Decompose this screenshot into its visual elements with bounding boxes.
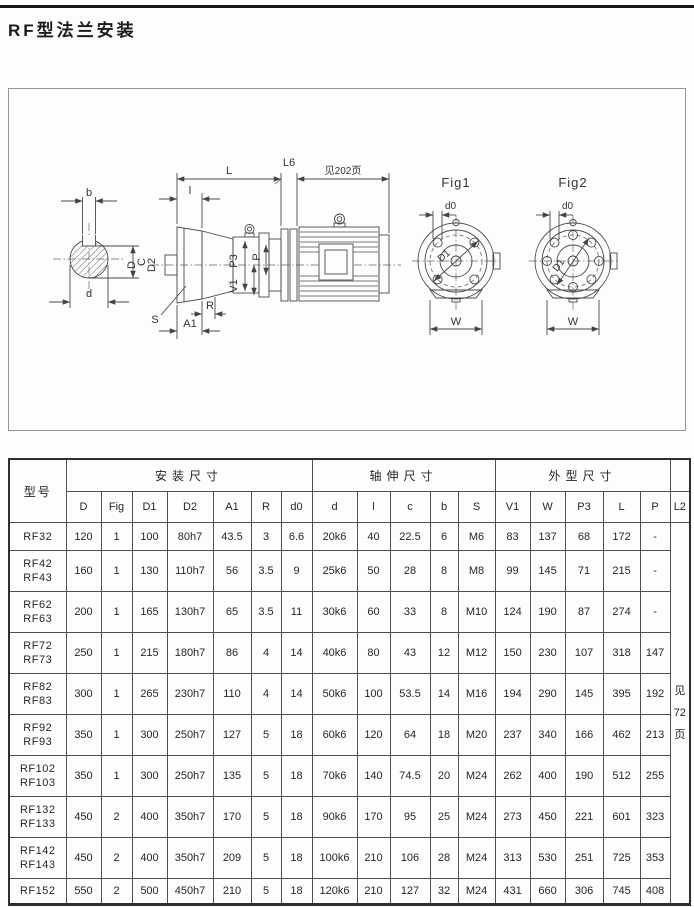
value-cell: 300 <box>66 674 101 715</box>
group-header-mounting: 安装尺寸 <box>66 459 312 492</box>
value-cell: 5 <box>251 797 281 838</box>
value-cell: 194 <box>495 674 530 715</box>
table-row: RF42RF431601130110h7563.5925k650288M8991… <box>9 551 690 592</box>
value-cell: 408 <box>640 879 670 905</box>
value-cell: 18 <box>281 756 312 797</box>
value-cell: 318 <box>603 633 640 674</box>
value-cell: 3 <box>251 523 281 551</box>
value-cell: 147 <box>640 633 670 674</box>
dim-label-P3: P3 <box>228 254 240 267</box>
value-cell: 273 <box>495 797 530 838</box>
value-cell: 68 <box>565 523 603 551</box>
value-cell: - <box>640 551 670 592</box>
table-row: RF102RF1033501300250h713551870k614074.52… <box>9 756 690 797</box>
value-cell: 300 <box>132 715 167 756</box>
col-header-d0: d0 <box>281 492 312 523</box>
value-cell: 1 <box>101 756 132 797</box>
value-cell: 395 <box>603 674 640 715</box>
model-name: RF32 <box>10 530 66 544</box>
value-cell: M8 <box>458 551 495 592</box>
dim-label-L6: L6 <box>283 157 295 169</box>
value-cell: 18 <box>281 838 312 879</box>
value-cell: 8 <box>430 551 458 592</box>
value-cell: 43 <box>390 633 430 674</box>
table-row: RF62RF632001165130h7653.51130k660338M101… <box>9 592 690 633</box>
value-cell: 56 <box>213 551 251 592</box>
value-cell: 400 <box>132 838 167 879</box>
fig1-caption: Fig1 <box>441 175 470 190</box>
value-cell: 40 <box>357 523 390 551</box>
fig1-dim-D1: D1 <box>436 247 453 264</box>
col-header-W: W <box>530 492 565 523</box>
table-row: RF72RF732501215180h78641440k6804312M1215… <box>9 633 690 674</box>
value-cell: 5 <box>251 838 281 879</box>
value-cell: 50k6 <box>312 674 357 715</box>
value-cell: 1 <box>101 715 132 756</box>
value-cell: M24 <box>458 797 495 838</box>
dim-label-R: R <box>206 300 214 312</box>
model-name: RF143 <box>10 858 66 872</box>
value-cell: 9 <box>281 551 312 592</box>
col-header-l: l <box>357 492 390 523</box>
value-cell: 350h7 <box>167 838 213 879</box>
value-cell: 400 <box>132 797 167 838</box>
value-cell: 8 <box>430 592 458 633</box>
value-cell: 1 <box>101 523 132 551</box>
table-row: RF92RF933501300250h712751860k61206418M20… <box>9 715 690 756</box>
value-cell: 5 <box>251 756 281 797</box>
value-cell: 601 <box>603 797 640 838</box>
value-cell: 725 <box>603 838 640 879</box>
value-cell: 313 <box>495 838 530 879</box>
model-name: RF142 <box>10 844 66 858</box>
l2-see-page-note: 见72页 <box>670 523 690 905</box>
model-name: RF93 <box>10 735 66 749</box>
model-name: RF132 <box>10 803 66 817</box>
value-cell: 130h7 <box>167 592 213 633</box>
value-cell: 450h7 <box>167 879 213 905</box>
dim-label-D: D <box>126 261 138 269</box>
value-cell: 166 <box>565 715 603 756</box>
value-cell: 145 <box>530 551 565 592</box>
value-cell: 28 <box>390 551 430 592</box>
col-header-S: S <box>458 492 495 523</box>
col-header-b: b <box>430 492 458 523</box>
value-cell: 160 <box>66 551 101 592</box>
value-cell: 221 <box>565 797 603 838</box>
col-header-L: L <box>603 492 640 523</box>
value-cell: M24 <box>458 756 495 797</box>
value-cell: 60 <box>357 592 390 633</box>
value-cell: 65 <box>213 592 251 633</box>
value-cell: M20 <box>458 715 495 756</box>
gearmotor-side-view <box>151 173 401 339</box>
value-cell: 25 <box>430 797 458 838</box>
value-cell: 350h7 <box>167 797 213 838</box>
group-header-l2-blank <box>670 459 690 492</box>
value-cell: 40k6 <box>312 633 357 674</box>
table-row: RF1525502500450h7210518120k621012732M244… <box>9 879 690 905</box>
value-cell: 255 <box>640 756 670 797</box>
fig2-dim-d0: d0 <box>562 201 574 212</box>
value-cell: 350 <box>66 715 101 756</box>
value-cell: 14 <box>430 674 458 715</box>
value-cell: 2 <box>101 797 132 838</box>
value-cell: 450 <box>66 838 101 879</box>
col-header-P: P <box>640 492 670 523</box>
value-cell: 170 <box>357 797 390 838</box>
value-cell: 60k6 <box>312 715 357 756</box>
value-cell: 14 <box>281 633 312 674</box>
value-cell: 250h7 <box>167 715 213 756</box>
value-cell: 43.5 <box>213 523 251 551</box>
value-cell: 2 <box>101 838 132 879</box>
value-cell: 90k6 <box>312 797 357 838</box>
group-header-overall: 外型尺寸 <box>495 459 670 492</box>
value-cell: 95 <box>390 797 430 838</box>
value-cell: M6 <box>458 523 495 551</box>
value-cell: 400 <box>530 756 565 797</box>
value-cell: 251 <box>565 838 603 879</box>
value-cell: 100 <box>132 523 167 551</box>
dim-label-A1: A1 <box>183 318 196 330</box>
value-cell: 306 <box>565 879 603 905</box>
value-cell: 230h7 <box>167 674 213 715</box>
value-cell: 130 <box>132 551 167 592</box>
value-cell: 100 <box>357 674 390 715</box>
shaft-section-drawing <box>49 197 139 308</box>
value-cell: 215 <box>132 633 167 674</box>
value-cell: 200 <box>66 592 101 633</box>
table-group-header-row: 型号 安装尺寸 轴伸尺寸 外型尺寸 <box>9 459 690 492</box>
value-cell: 190 <box>530 592 565 633</box>
value-cell: 6 <box>430 523 458 551</box>
value-cell: 230 <box>530 633 565 674</box>
value-cell: 262 <box>495 756 530 797</box>
page-top-rule <box>0 5 694 8</box>
value-cell: 210 <box>357 879 390 905</box>
table-row: RF132RF1334502400350h717051890k61709525M… <box>9 797 690 838</box>
value-cell: 250 <box>66 633 101 674</box>
model-cell: RF82RF83 <box>9 674 66 715</box>
model-cell: RF62RF63 <box>9 592 66 633</box>
model-name: RF43 <box>10 571 66 585</box>
value-cell: 5 <box>251 879 281 905</box>
value-cell: 1 <box>101 592 132 633</box>
fig2-dim-D1: D1 <box>551 257 568 274</box>
dim-label-b: b <box>86 187 92 199</box>
value-cell: 300 <box>132 756 167 797</box>
value-cell: 1 <box>101 633 132 674</box>
value-cell: 11 <box>281 592 312 633</box>
table-body: RF32120110080h743.536.620k64022.56M68313… <box>9 523 690 905</box>
model-name: RF82 <box>10 680 66 694</box>
model-name: RF102 <box>10 762 66 776</box>
value-cell: 14 <box>281 674 312 715</box>
value-cell: 99 <box>495 551 530 592</box>
value-cell: 74.5 <box>390 756 430 797</box>
value-cell: 30k6 <box>312 592 357 633</box>
value-cell: 28 <box>430 838 458 879</box>
value-cell: 124 <box>495 592 530 633</box>
col-header-model: 型号 <box>9 459 66 523</box>
value-cell: 190 <box>565 756 603 797</box>
col-header-c: c <box>390 492 430 523</box>
col-header-D2: D2 <box>167 492 213 523</box>
model-name: RF63 <box>10 612 66 626</box>
value-cell: 110h7 <box>167 551 213 592</box>
fig1-dim-d0: d0 <box>445 201 457 212</box>
value-cell: 100k6 <box>312 838 357 879</box>
value-cell: 120k6 <box>312 879 357 905</box>
value-cell: 4 <box>251 633 281 674</box>
value-cell: 250h7 <box>167 756 213 797</box>
value-cell: 237 <box>495 715 530 756</box>
value-cell: M10 <box>458 592 495 633</box>
dimension-drawing-panel: b C d <box>8 88 686 431</box>
value-cell: 86 <box>213 633 251 674</box>
value-cell: 210 <box>357 838 390 879</box>
value-cell: 120 <box>66 523 101 551</box>
value-cell: 290 <box>530 674 565 715</box>
value-cell: 80h7 <box>167 523 213 551</box>
model-cell: RF72RF73 <box>9 633 66 674</box>
value-cell: 350 <box>66 756 101 797</box>
value-cell: 745 <box>603 879 640 905</box>
page-title: RF型法兰安装 <box>8 16 137 41</box>
table-row: RF82RF833001265230h711041450k610053.514M… <box>9 674 690 715</box>
value-cell: 22.5 <box>390 523 430 551</box>
value-cell: 431 <box>495 879 530 905</box>
value-cell: 70k6 <box>312 756 357 797</box>
value-cell: 172 <box>603 523 640 551</box>
value-cell: 500 <box>132 879 167 905</box>
value-cell: M16 <box>458 674 495 715</box>
value-cell: 127 <box>213 715 251 756</box>
model-cell: RF152 <box>9 879 66 905</box>
value-cell: 550 <box>66 879 101 905</box>
dim-label-L: L <box>226 165 232 177</box>
dim-label-l: l <box>189 185 191 197</box>
value-cell: M12 <box>458 633 495 674</box>
value-cell: 210 <box>213 879 251 905</box>
col-header-d: d <box>312 492 357 523</box>
value-cell: 4 <box>251 674 281 715</box>
table-row: RF142RF1434502400350h7209518100k62101062… <box>9 838 690 879</box>
value-cell: 106 <box>390 838 430 879</box>
value-cell: 165 <box>132 592 167 633</box>
model-name: RF62 <box>10 598 66 612</box>
group-header-shaft: 轴伸尺寸 <box>312 459 495 492</box>
value-cell: 80 <box>357 633 390 674</box>
value-cell: 353 <box>640 838 670 879</box>
value-cell: - <box>640 592 670 633</box>
value-cell: 150 <box>495 633 530 674</box>
model-name: RF73 <box>10 653 66 667</box>
col-header-D: D <box>66 492 101 523</box>
value-cell: 5 <box>251 715 281 756</box>
dim-label-S: S <box>151 314 158 326</box>
value-cell: 12 <box>430 633 458 674</box>
value-cell: 18 <box>430 715 458 756</box>
value-cell: 2 <box>101 879 132 905</box>
fig2-dim-W: W <box>568 316 579 328</box>
fig1-dim-W: W <box>451 316 462 328</box>
model-cell: RF132RF133 <box>9 797 66 838</box>
value-cell: 6.6 <box>281 523 312 551</box>
value-cell: 462 <box>603 715 640 756</box>
dim-label-P: P <box>251 253 263 260</box>
model-cell: RF92RF93 <box>9 715 66 756</box>
value-cell: 32 <box>430 879 458 905</box>
col-header-L2: L2 <box>670 492 690 523</box>
value-cell: 50 <box>357 551 390 592</box>
model-name: RF92 <box>10 721 66 735</box>
value-cell: M24 <box>458 838 495 879</box>
col-header-D1: D1 <box>132 492 167 523</box>
value-cell: 3.5 <box>251 592 281 633</box>
model-name: RF72 <box>10 639 66 653</box>
model-name: RF42 <box>10 557 66 571</box>
l2-note-char: 页 <box>671 728 690 743</box>
value-cell: 450 <box>530 797 565 838</box>
dim-label-d: d <box>86 288 92 300</box>
value-cell: 137 <box>530 523 565 551</box>
value-cell: 265 <box>132 674 167 715</box>
value-cell: 110 <box>213 674 251 715</box>
value-cell: 450 <box>66 797 101 838</box>
value-cell: 64 <box>390 715 430 756</box>
value-cell: 20k6 <box>312 523 357 551</box>
dimension-table: 型号 安装尺寸 轴伸尺寸 外型尺寸 D Fig D1 D2 A1 R d0 d … <box>8 458 691 906</box>
value-cell: 3.5 <box>251 551 281 592</box>
model-name: RF83 <box>10 694 66 708</box>
value-cell: 18 <box>281 797 312 838</box>
value-cell: 213 <box>640 715 670 756</box>
value-cell: 192 <box>640 674 670 715</box>
value-cell: 1 <box>101 551 132 592</box>
dimension-drawing: b C d <box>9 89 685 430</box>
value-cell: 274 <box>603 592 640 633</box>
value-cell: 120 <box>357 715 390 756</box>
value-cell: 340 <box>530 715 565 756</box>
value-cell: 512 <box>603 756 640 797</box>
value-cell: 83 <box>495 523 530 551</box>
value-cell: 25k6 <box>312 551 357 592</box>
value-cell: 135 <box>213 756 251 797</box>
l2-note-char: 见 <box>671 684 690 699</box>
value-cell: 18 <box>281 715 312 756</box>
col-header-R: R <box>251 492 281 523</box>
model-cell: RF102RF103 <box>9 756 66 797</box>
col-header-A1: A1 <box>213 492 251 523</box>
dim-label-V1: V1 <box>228 279 240 292</box>
fig2-caption: Fig2 <box>558 175 587 190</box>
value-cell: 323 <box>640 797 670 838</box>
table-sub-header-row: D Fig D1 D2 A1 R d0 d l c b S V1 W P3 L … <box>9 492 690 523</box>
table-row: RF32120110080h743.536.620k64022.56M68313… <box>9 523 690 551</box>
model-cell: RF42RF43 <box>9 551 66 592</box>
value-cell: 180h7 <box>167 633 213 674</box>
model-name: RF133 <box>10 817 66 831</box>
value-cell: 87 <box>565 592 603 633</box>
see-page-202-note: 见202页 <box>325 165 362 177</box>
l2-note-char: 72 <box>671 706 690 721</box>
value-cell: - <box>640 523 670 551</box>
value-cell: 1 <box>101 674 132 715</box>
value-cell: 215 <box>603 551 640 592</box>
col-header-V1: V1 <box>495 492 530 523</box>
value-cell: 33 <box>390 592 430 633</box>
value-cell: 145 <box>565 674 603 715</box>
value-cell: 140 <box>357 756 390 797</box>
dim-label-D2: D2 <box>146 258 158 272</box>
col-header-Fig: Fig <box>101 492 132 523</box>
model-cell: RF142RF143 <box>9 838 66 879</box>
model-cell: RF32 <box>9 523 66 551</box>
value-cell: 71 <box>565 551 603 592</box>
model-name: RF103 <box>10 776 66 790</box>
value-cell: 170 <box>213 797 251 838</box>
value-cell: 209 <box>213 838 251 879</box>
value-cell: 127 <box>390 879 430 905</box>
value-cell: M24 <box>458 879 495 905</box>
value-cell: 530 <box>530 838 565 879</box>
value-cell: 107 <box>565 633 603 674</box>
value-cell: 20 <box>430 756 458 797</box>
value-cell: 18 <box>281 879 312 905</box>
value-cell: 660 <box>530 879 565 905</box>
model-name: RF152 <box>10 884 66 898</box>
col-header-P3: P3 <box>565 492 603 523</box>
value-cell: 53.5 <box>390 674 430 715</box>
